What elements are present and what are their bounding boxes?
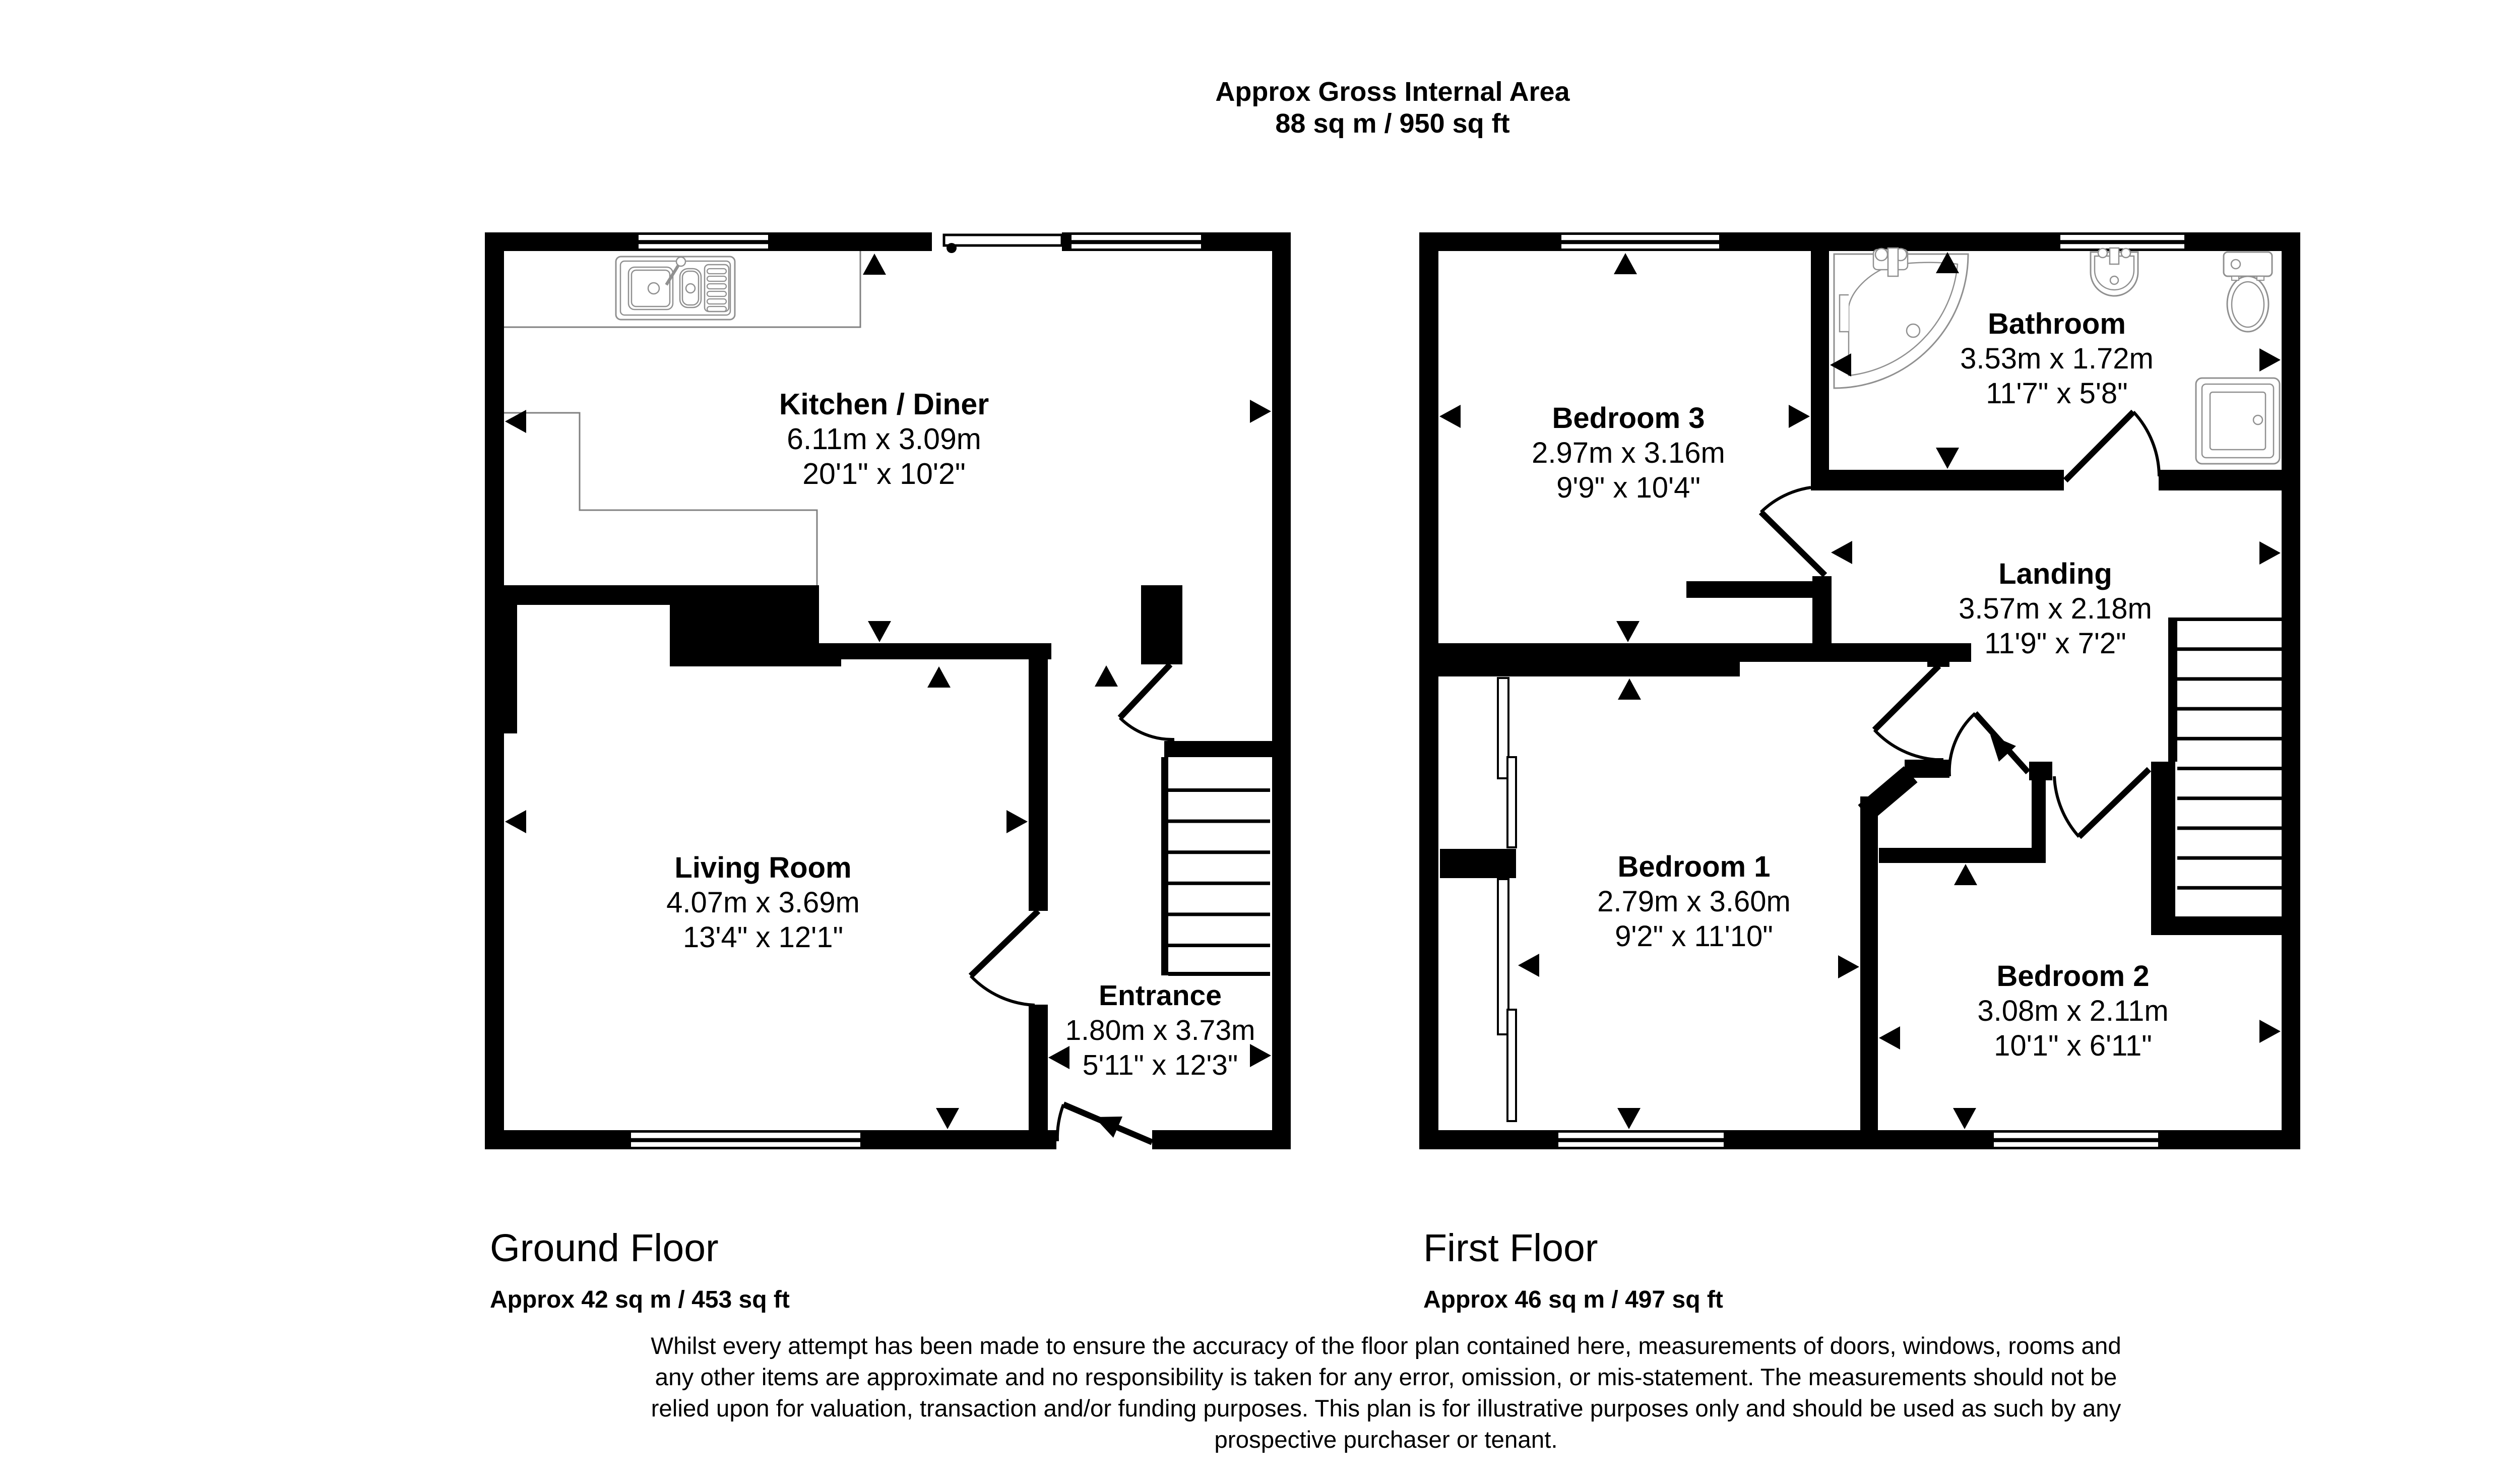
svg-text:11'7" x 5'8": 11'7" x 5'8" — [1986, 377, 2128, 410]
svg-text:9'2" x 11'10": 9'2" x 11'10" — [1615, 920, 1773, 953]
svg-text:Whilst every attempt has been: Whilst every attempt has been made to en… — [651, 1333, 2121, 1360]
svg-text:2.79m x 3.60m: 2.79m x 3.60m — [1597, 885, 1791, 918]
svg-text:9'9" x 10'4": 9'9" x 10'4" — [1556, 471, 1700, 504]
svg-text:Landing: Landing — [1998, 558, 2112, 590]
svg-text:6.11m x 3.09m: 6.11m x 3.09m — [787, 422, 981, 456]
svg-text:11'9" x 7'2": 11'9" x 7'2" — [1984, 627, 2126, 660]
svg-text:Approx Gross Internal Area: Approx Gross Internal Area — [1215, 77, 1570, 107]
svg-text:any other items are approximat: any other items are approximate and no r… — [655, 1364, 2117, 1391]
svg-text:13'4" x 12'1": 13'4" x 12'1" — [683, 921, 843, 954]
svg-text:5'11" x 12'3": 5'11" x 12'3" — [1083, 1049, 1238, 1081]
svg-text:88 sq m / 950 sq ft: 88 sq m / 950 sq ft — [1275, 108, 1509, 139]
svg-text:3.53m x 1.72m: 3.53m x 1.72m — [1960, 342, 2154, 375]
svg-text:Bedroom 1: Bedroom 1 — [1618, 850, 1771, 883]
svg-text:Entrance: Entrance — [1099, 979, 1222, 1012]
svg-text:First Floor: First Floor — [1423, 1226, 1598, 1270]
svg-text:Living Room: Living Room — [674, 851, 851, 884]
svg-text:Bedroom 2: Bedroom 2 — [1997, 960, 2150, 993]
svg-text:Kitchen / Diner: Kitchen / Diner — [779, 388, 989, 421]
svg-text:4.07m x 3.69m: 4.07m x 3.69m — [666, 886, 860, 919]
svg-text:Approx 46 sq m / 497 sq ft: Approx 46 sq m / 497 sq ft — [1423, 1286, 1723, 1313]
svg-text:2.97m x 3.16m: 2.97m x 3.16m — [1532, 437, 1725, 469]
svg-text:20'1" x 10'2": 20'1" x 10'2" — [802, 457, 966, 490]
svg-text:Bedroom 3: Bedroom 3 — [1552, 402, 1705, 435]
svg-text:Ground Floor: Ground Floor — [490, 1226, 719, 1270]
svg-text:Approx 42 sq m / 453 sq ft: Approx 42 sq m / 453 sq ft — [490, 1286, 790, 1313]
svg-text:prospective purchaser or tenan: prospective purchaser or tenant. — [1214, 1427, 1557, 1453]
svg-text:1.80m x 3.73m: 1.80m x 3.73m — [1065, 1014, 1255, 1046]
svg-text:Bathroom: Bathroom — [1988, 307, 2126, 340]
svg-text:relied upon for valuation, tra: relied upon for valuation, transaction a… — [651, 1395, 2121, 1422]
svg-text:10'1" x 6'11": 10'1" x 6'11" — [1994, 1029, 2152, 1062]
svg-text:3.57m x 2.18m: 3.57m x 2.18m — [1959, 592, 2152, 625]
svg-text:3.08m x 2.11m: 3.08m x 2.11m — [1977, 995, 2168, 1027]
